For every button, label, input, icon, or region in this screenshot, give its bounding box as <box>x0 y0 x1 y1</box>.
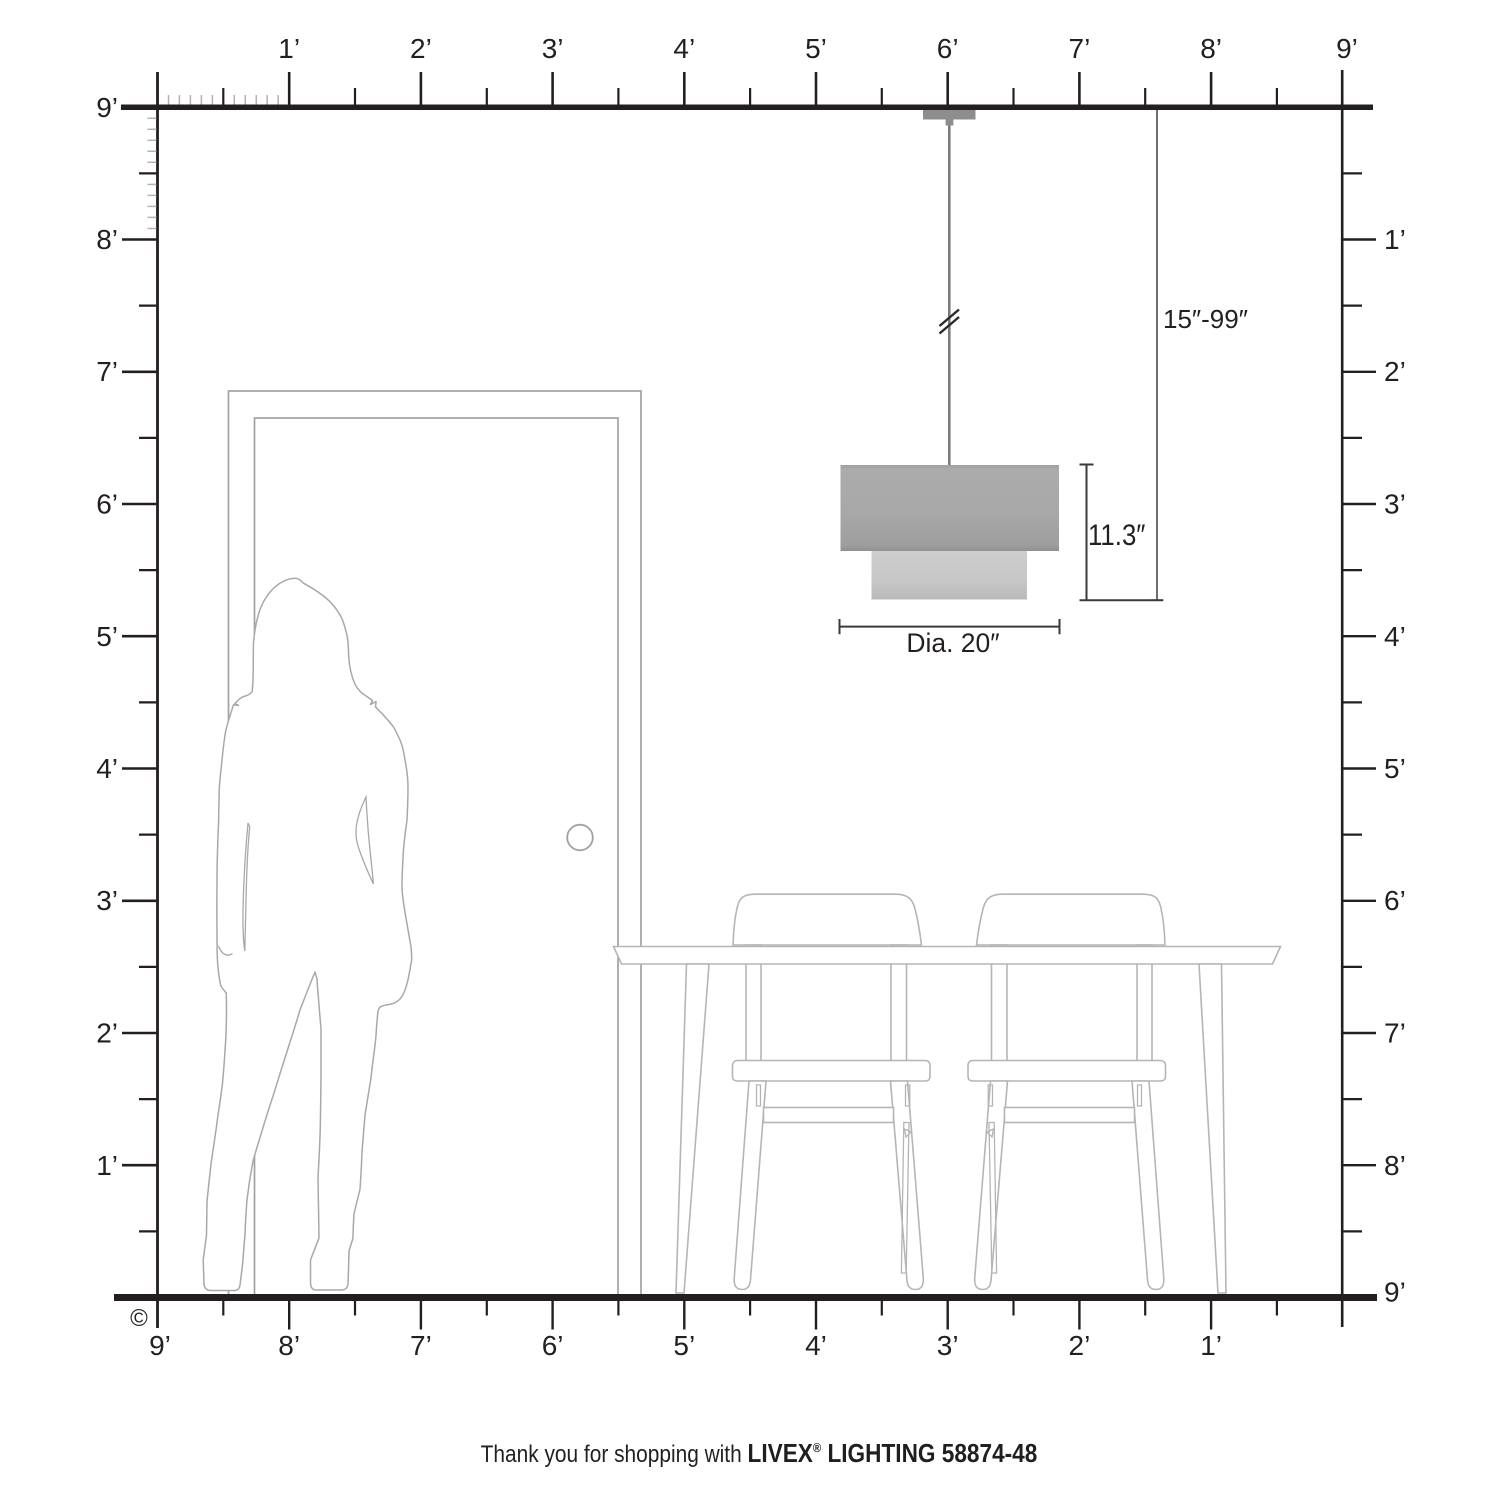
svg-text:8’: 8’ <box>278 1330 300 1361</box>
svg-text:8’: 8’ <box>96 224 118 255</box>
svg-text:7’: 7’ <box>1069 33 1091 64</box>
svg-text:Thank you for shopping with LI: Thank you for shopping with LIVEX® LIGHT… <box>481 1440 1038 1469</box>
svg-text:7’: 7’ <box>96 356 118 387</box>
svg-text:Dia. 20″: Dia. 20″ <box>906 628 999 658</box>
svg-text:9’: 9’ <box>96 92 118 123</box>
svg-text:1’: 1’ <box>96 1150 118 1181</box>
svg-text:3’: 3’ <box>96 885 118 916</box>
svg-text:2’: 2’ <box>1384 356 1406 387</box>
svg-text:2’: 2’ <box>1069 1330 1091 1361</box>
svg-text:1’: 1’ <box>1384 224 1406 255</box>
svg-text:4’: 4’ <box>1384 621 1406 652</box>
svg-text:5’: 5’ <box>1384 753 1406 784</box>
svg-text:4’: 4’ <box>805 1330 827 1361</box>
svg-text:1’: 1’ <box>1200 1330 1222 1361</box>
svg-text:9’: 9’ <box>1384 1277 1406 1308</box>
svg-text:15″-99″: 15″-99″ <box>1163 304 1248 334</box>
svg-text:8’: 8’ <box>1384 1150 1406 1181</box>
svg-text:11.3″: 11.3″ <box>1088 518 1146 551</box>
svg-text:5’: 5’ <box>96 621 118 652</box>
svg-text:6’: 6’ <box>542 1330 564 1361</box>
svg-text:6’: 6’ <box>1384 885 1406 916</box>
svg-text:2’: 2’ <box>96 1018 118 1049</box>
svg-text:©: © <box>130 1305 148 1332</box>
svg-text:3’: 3’ <box>937 1330 959 1361</box>
svg-text:8’: 8’ <box>1200 33 1222 64</box>
svg-text:6’: 6’ <box>96 489 118 520</box>
svg-text:3’: 3’ <box>1384 489 1406 520</box>
svg-text:1’: 1’ <box>278 33 300 64</box>
svg-text:2’: 2’ <box>410 33 432 64</box>
svg-text:9’: 9’ <box>1336 33 1358 64</box>
svg-text:7’: 7’ <box>410 1330 432 1361</box>
svg-text:7’: 7’ <box>1384 1018 1406 1049</box>
svg-text:3’: 3’ <box>542 33 564 64</box>
svg-text:6’: 6’ <box>937 33 959 64</box>
svg-text:5’: 5’ <box>805 33 827 64</box>
svg-text:5’: 5’ <box>673 1330 695 1361</box>
svg-text:4’: 4’ <box>96 753 118 784</box>
svg-text:9’: 9’ <box>149 1330 171 1361</box>
svg-text:4’: 4’ <box>673 33 695 64</box>
